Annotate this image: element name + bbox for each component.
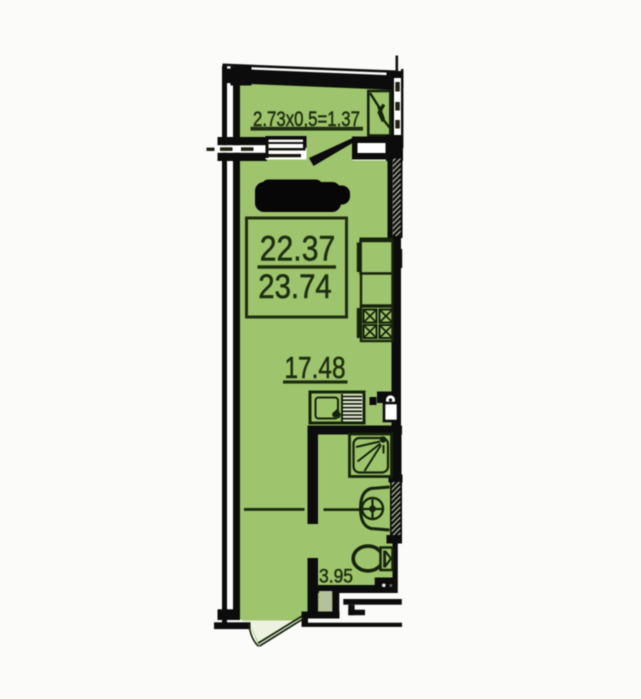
svg-text:17.48: 17.48 bbox=[285, 350, 346, 385]
svg-text:3.95: 3.95 bbox=[319, 566, 353, 588]
svg-text:22.37: 22.37 bbox=[260, 229, 336, 269]
svg-text:23.74: 23.74 bbox=[258, 268, 332, 306]
